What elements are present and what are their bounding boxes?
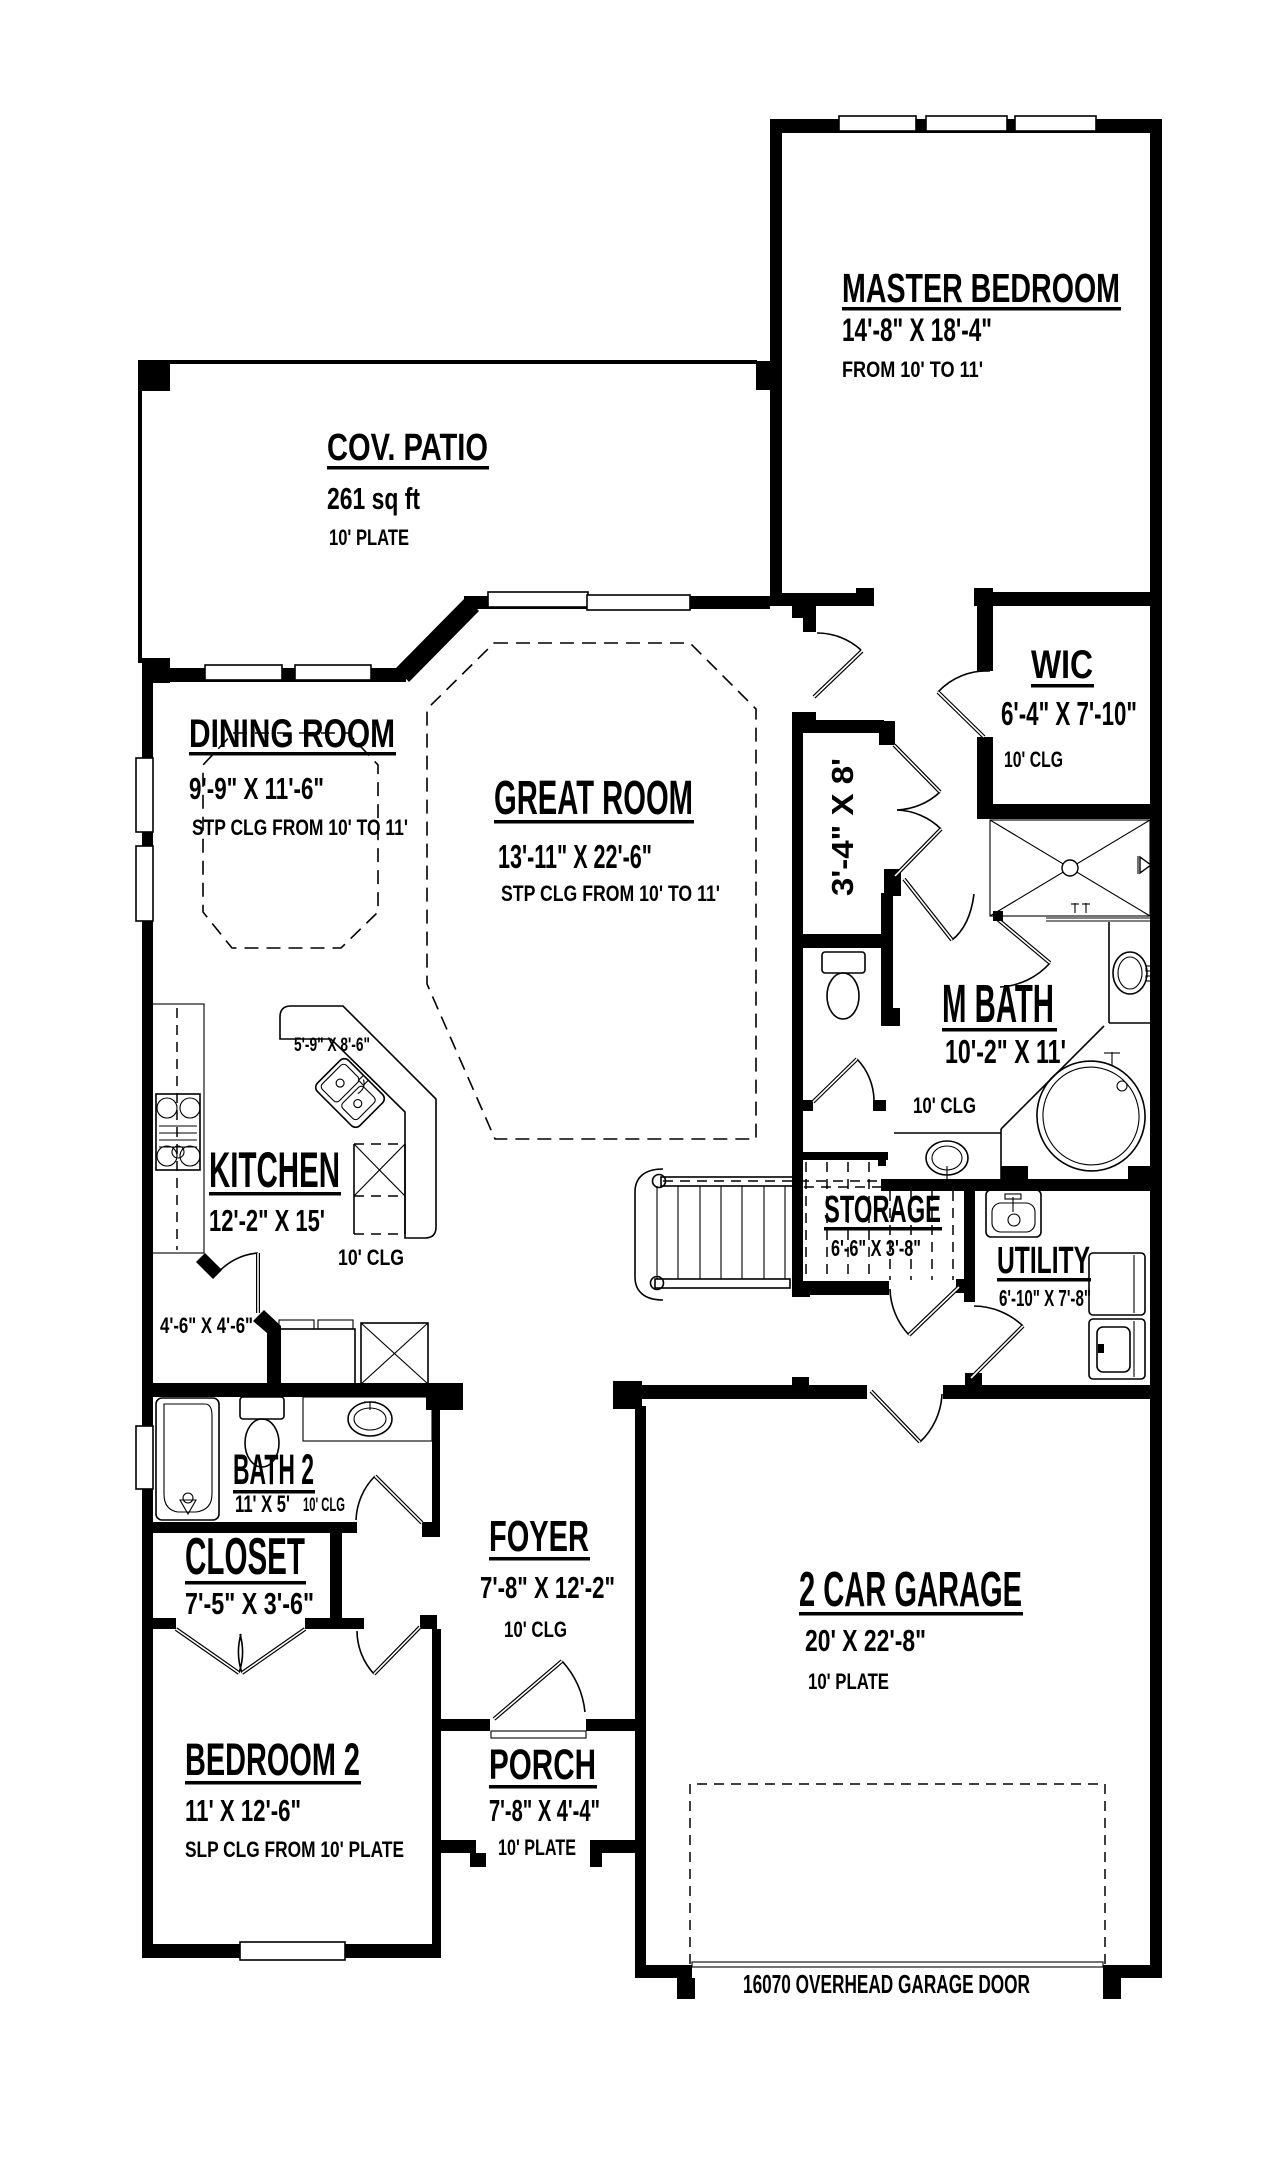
svg-text:STP CLG FROM 10' TO 11': STP CLG FROM 10' TO 11': [192, 815, 408, 840]
svg-text:10' CLG: 10' CLG: [504, 1617, 567, 1642]
svg-text:UTILITY: UTILITY: [997, 1240, 1090, 1282]
svg-text:9'-9" X 11'-6": 9'-9" X 11'-6": [189, 771, 324, 806]
svg-text:10' CLG: 10' CLG: [913, 1093, 976, 1118]
svg-text:CLOSET: CLOSET: [185, 1528, 305, 1586]
svg-text:6'-6" X 3'-8": 6'-6" X 3'-8": [831, 1235, 921, 1261]
svg-text:FOYER: FOYER: [489, 1512, 589, 1561]
svg-text:FROM 10' TO 11': FROM 10' TO 11': [842, 357, 983, 382]
svg-text:COV. PATIO: COV. PATIO: [327, 427, 488, 469]
svg-text:10' PLATE: 10' PLATE: [498, 1835, 576, 1860]
svg-text:16070 OVERHEAD GARAGE DOOR: 16070 OVERHEAD GARAGE DOOR: [743, 1969, 1030, 1999]
svg-text:M BATH: M BATH: [942, 974, 1054, 1034]
svg-text:STORAGE: STORAGE: [824, 1189, 941, 1231]
svg-text:WIC: WIC: [1031, 643, 1093, 687]
svg-text:7'-8" X 4'-4": 7'-8" X 4'-4": [489, 1793, 600, 1828]
svg-text:BATH 2: BATH 2: [233, 1446, 314, 1494]
svg-text:6'-4" X 7'-10": 6'-4" X 7'-10": [1001, 695, 1137, 732]
svg-text:12'-2" X 15': 12'-2" X 15': [209, 1203, 325, 1238]
svg-text:261 sq ft: 261 sq ft: [327, 481, 420, 516]
svg-text:2 CAR GARAGE: 2 CAR GARAGE: [799, 1563, 1022, 1617]
svg-text:3'-4" X 8': 3'-4" X 8': [825, 758, 860, 896]
svg-text:6'-10" X 7'-8": 6'-10" X 7'-8": [999, 1285, 1091, 1311]
svg-text:10'-2" X 11': 10'-2" X 11': [945, 1033, 1066, 1070]
svg-text:10' CLG: 10' CLG: [303, 1495, 345, 1516]
svg-text:13'-11" X 22'-6": 13'-11" X 22'-6": [498, 838, 652, 875]
svg-text:5'-9" X 8'-6": 5'-9" X 8'-6": [294, 1035, 370, 1056]
svg-text:STP CLG FROM 10' TO 11': STP CLG FROM 10' TO 11': [501, 881, 720, 906]
svg-text:BEDROOM 2: BEDROOM 2: [185, 1734, 360, 1785]
svg-text:11' X 5': 11' X 5': [235, 1491, 290, 1518]
svg-text:10' PLATE: 10' PLATE: [329, 525, 409, 550]
svg-text:14'-8" X 18'-4": 14'-8" X 18'-4": [842, 312, 992, 348]
svg-text:7'-8" X 12'-2": 7'-8" X 12'-2": [480, 1570, 615, 1605]
svg-text:10' PLATE: 10' PLATE: [808, 1669, 889, 1694]
svg-text:KITCHEN: KITCHEN: [209, 1142, 340, 1198]
svg-text:4'-6" X 4'-6": 4'-6" X 4'-6": [160, 1313, 253, 1338]
svg-text:10' CLG: 10' CLG: [1004, 747, 1063, 772]
svg-text:11' X 12'-6": 11' X 12'-6": [185, 1793, 301, 1828]
svg-text:10' CLG: 10' CLG: [338, 1245, 404, 1270]
svg-text:SLP CLG FROM 10' PLATE: SLP CLG FROM 10' PLATE: [185, 1837, 404, 1862]
svg-text:GREAT ROOM: GREAT ROOM: [494, 772, 693, 825]
svg-text:MASTER BEDROOM: MASTER BEDROOM: [842, 265, 1120, 311]
svg-text:7'-5" X 3'-6": 7'-5" X 3'-6": [185, 1586, 314, 1621]
svg-text:PORCH: PORCH: [489, 1741, 596, 1789]
svg-text:20' X 22'-8": 20' X 22'-8": [805, 1623, 926, 1658]
